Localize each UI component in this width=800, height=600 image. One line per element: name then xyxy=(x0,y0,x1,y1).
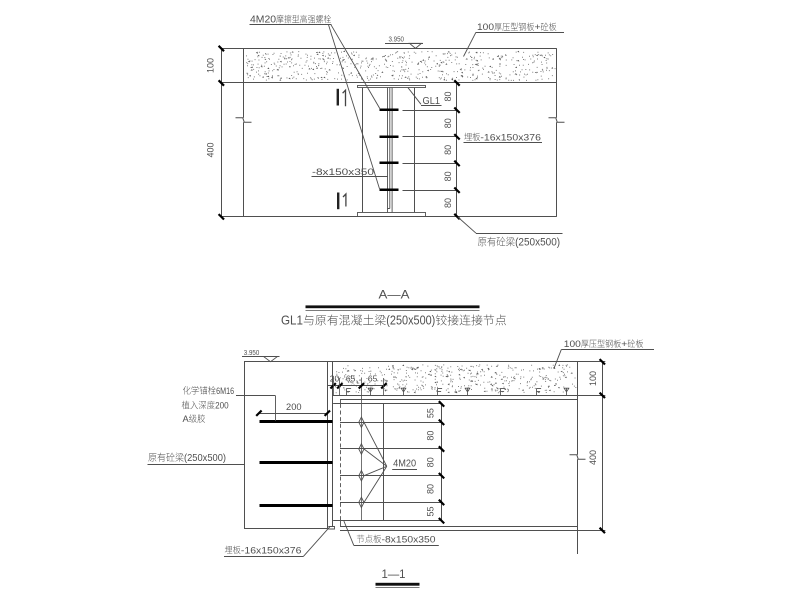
svg-text:80: 80 xyxy=(443,118,453,128)
svg-text:100: 100 xyxy=(477,22,494,33)
svg-text:-16x150x376: -16x150x376 xyxy=(480,132,540,143)
svg-text:A: A xyxy=(183,414,190,424)
svg-text:4M20: 4M20 xyxy=(393,459,416,470)
svg-text:20: 20 xyxy=(330,374,340,384)
svg-text:400: 400 xyxy=(588,450,598,465)
svg-text:80: 80 xyxy=(443,145,453,155)
svg-text:3.950: 3.950 xyxy=(244,348,259,357)
svg-text:400: 400 xyxy=(206,142,216,157)
svg-text:(250x500): (250x500) xyxy=(184,452,226,464)
svg-text:(250x500): (250x500) xyxy=(386,314,435,328)
svg-text:100: 100 xyxy=(206,58,216,73)
svg-text:4M20: 4M20 xyxy=(250,15,276,26)
svg-text:GL1: GL1 xyxy=(423,96,441,107)
svg-text:100: 100 xyxy=(588,371,598,386)
svg-text:GL1: GL1 xyxy=(281,314,303,328)
svg-text:80: 80 xyxy=(426,484,436,494)
svg-text:80: 80 xyxy=(443,171,453,181)
svg-text:3.950: 3.950 xyxy=(389,35,405,44)
svg-text:100: 100 xyxy=(564,339,581,350)
svg-text:200: 200 xyxy=(215,401,229,411)
svg-text:65: 65 xyxy=(368,374,378,384)
svg-text:80: 80 xyxy=(426,457,436,467)
svg-text:55: 55 xyxy=(426,506,436,516)
svg-text:1—1: 1—1 xyxy=(382,567,406,581)
svg-text:6M16: 6M16 xyxy=(216,386,234,396)
svg-text:+: + xyxy=(621,339,627,350)
svg-text:A—A: A—A xyxy=(379,288,410,302)
svg-text:(250x500): (250x500) xyxy=(515,237,560,249)
svg-text:65: 65 xyxy=(346,374,356,384)
svg-text:55: 55 xyxy=(426,408,436,418)
svg-text:+: + xyxy=(535,22,541,33)
svg-text:-16x150x376: -16x150x376 xyxy=(241,545,302,556)
svg-text:80: 80 xyxy=(443,91,453,101)
svg-text:-8x150x350: -8x150x350 xyxy=(382,534,436,545)
svg-text:80: 80 xyxy=(426,431,436,441)
svg-text:200: 200 xyxy=(286,402,302,413)
svg-text:80: 80 xyxy=(443,198,453,208)
